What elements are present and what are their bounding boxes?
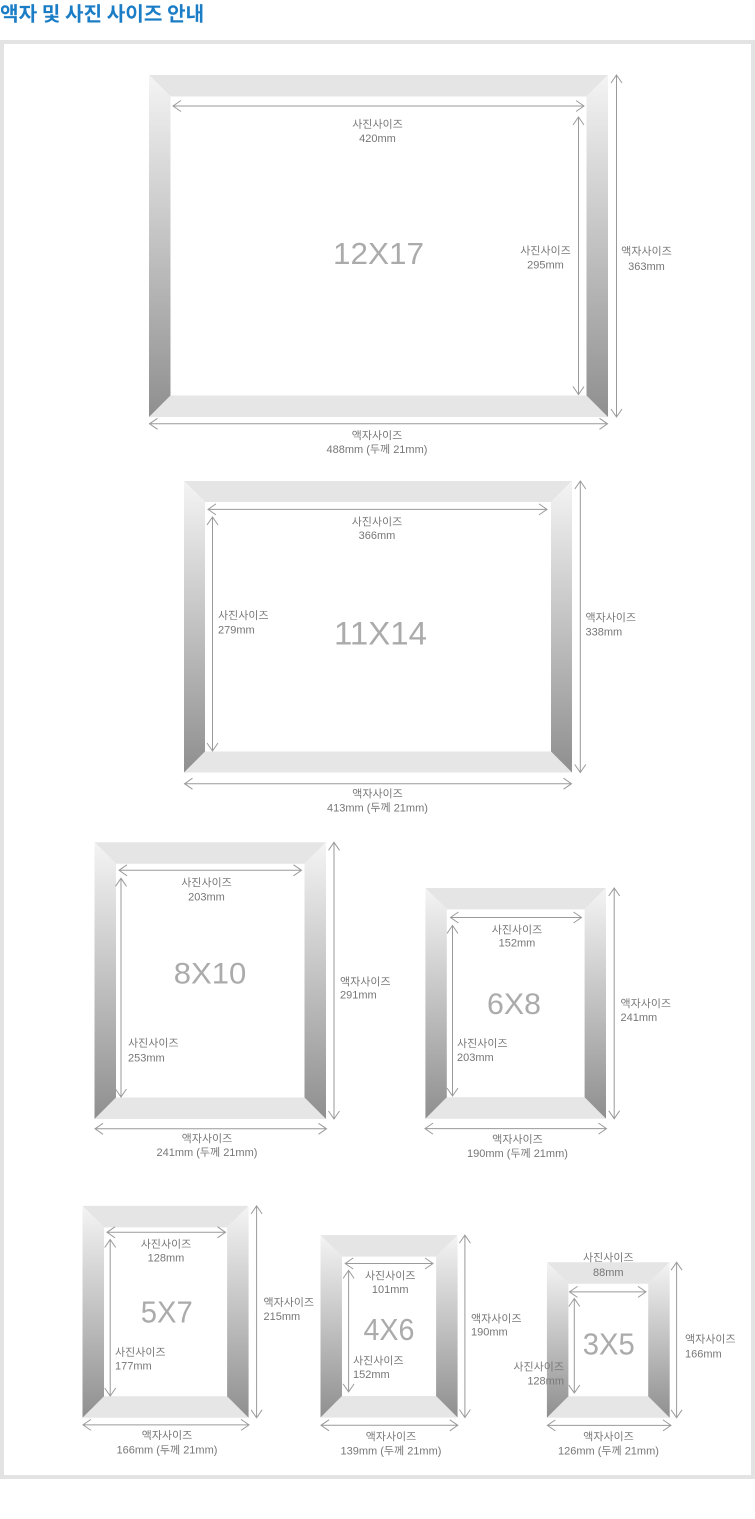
svg-text:166mm: 166mm — [685, 1348, 722, 1360]
svg-text:215mm: 215mm — [264, 1311, 301, 1323]
svg-text:190mm (: 190mm ( — [467, 1148, 511, 1160]
svg-text:126mm (: 126mm ( — [558, 1446, 602, 1458]
svg-text:177mm: 177mm — [115, 1361, 152, 1373]
svg-text:139mm (: 139mm ( — [341, 1446, 385, 1458]
svg-text:190mm: 190mm — [471, 1327, 508, 1339]
svg-text:3X5: 3X5 — [583, 1327, 635, 1362]
svg-text:8X10: 8X10 — [174, 957, 247, 990]
svg-text:413mm (: 413mm ( — [327, 802, 371, 814]
svg-text:291mm: 291mm — [340, 990, 377, 1002]
svg-text:5X7: 5X7 — [141, 1295, 193, 1330]
svg-text:152mm: 152mm — [499, 938, 536, 950]
svg-text:101mm: 101mm — [372, 1284, 409, 1296]
svg-text:295mm: 295mm — [527, 260, 564, 272]
svg-text:128mm: 128mm — [527, 1376, 564, 1388]
svg-text:253mm: 253mm — [128, 1053, 165, 1065]
svg-text:363mm: 363mm — [628, 261, 665, 273]
svg-text:21mm): 21mm) — [183, 1445, 217, 1457]
svg-text:21mm): 21mm) — [394, 802, 428, 814]
svg-text:21mm): 21mm) — [393, 444, 427, 456]
svg-text:12X17: 12X17 — [333, 236, 424, 271]
svg-text:21mm): 21mm) — [223, 1147, 257, 1159]
svg-text:241mm: 241mm — [621, 1012, 658, 1024]
svg-text:203mm: 203mm — [188, 891, 225, 903]
svg-text:241mm (: 241mm ( — [157, 1147, 201, 1159]
svg-text:21mm): 21mm) — [625, 1446, 659, 1458]
svg-text:6X8: 6X8 — [487, 988, 541, 1021]
svg-text:488mm (: 488mm ( — [327, 444, 371, 456]
svg-text:279mm: 279mm — [218, 625, 255, 637]
svg-text:11X14: 11X14 — [334, 616, 427, 652]
svg-text:420mm: 420mm — [359, 133, 396, 145]
svg-text:21mm): 21mm) — [534, 1148, 568, 1160]
svg-text:366mm: 366mm — [359, 530, 396, 542]
svg-text:152mm: 152mm — [353, 1369, 390, 1381]
svg-text:128mm: 128mm — [148, 1252, 185, 1264]
svg-text:166mm (: 166mm ( — [117, 1445, 161, 1457]
svg-text:338mm: 338mm — [586, 627, 623, 639]
svg-text:21mm): 21mm) — [407, 1446, 441, 1458]
svg-text:203mm: 203mm — [457, 1052, 494, 1064]
svg-text:4X6: 4X6 — [364, 1312, 415, 1347]
svg-text:88mm: 88mm — [593, 1267, 624, 1279]
